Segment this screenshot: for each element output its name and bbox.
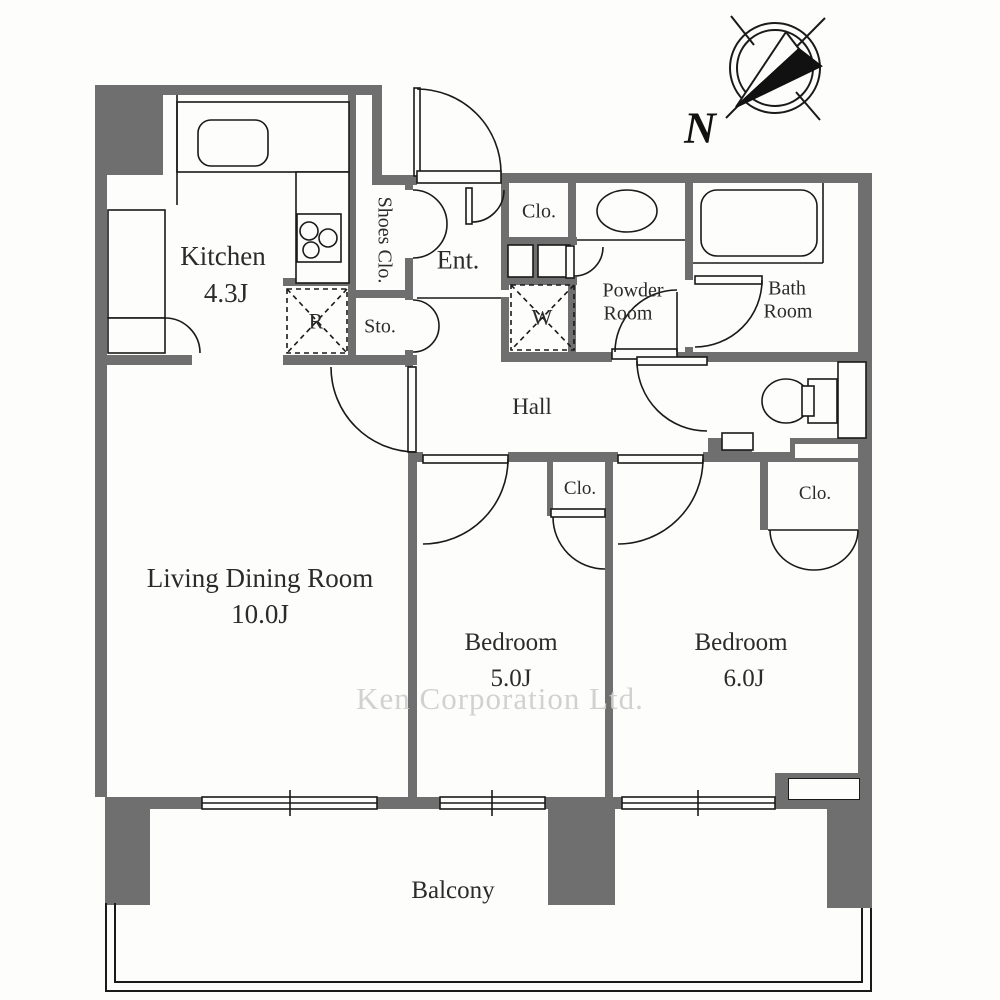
powder-inner-door [566,246,603,278]
room-label-closet-entrance: Clo. [522,202,556,223]
window [440,790,545,816]
room-size-bedroom6: 6.0J [724,666,765,692]
storage-doors [413,300,439,352]
window [202,790,377,816]
entrance-door [414,88,501,183]
compass-icon [726,16,825,120]
room-label-storage: Sto. [364,317,396,338]
watermark: Ken Corporation Ltd. [356,681,644,717]
bathtub [693,183,823,263]
entrance-closet-door [466,188,504,224]
bath-door [695,276,762,347]
living-room-door [331,367,416,452]
room-label-bedroom6: Bedroom [694,630,787,656]
room-label-hall: Hall [512,395,552,419]
room-label-balcony: Balcony [411,878,494,904]
room-label-kitchen: Kitchen [180,242,265,270]
toilet-door [637,357,707,431]
floor-plan: Kitchen 4.3J Shoes Clo. Sto. R W Ent. Cl… [0,0,1000,1000]
room-size-kitchen: 4.3J [204,279,248,307]
cabinet [508,245,533,277]
room-size-living: 10.0J [231,600,289,628]
room-label-closet-bedroom5: Clo. [564,479,596,499]
room-label-closet-bedroom6: Clo. [799,484,831,504]
symbol-washer: W [532,305,553,328]
compass-north-label: N [684,103,716,154]
vanity-sink [577,190,685,240]
bedroom6-closet-bifold-door [768,530,858,570]
room-label-entrance: Ent. [437,246,480,273]
window [622,790,775,816]
room-label-bath-room-line2: Room [764,302,813,323]
room-label-powder-room-line2: Room [604,304,653,325]
toilet [722,362,866,450]
bedroom5-closet-door [551,509,605,569]
fixtures-layer [0,0,1000,1000]
room-label-powder-room-line1: Powder [602,281,663,302]
balcony-railing [106,903,871,991]
room-label-bath-room-line1: Bath [768,279,806,300]
room-label-bedroom5: Bedroom [464,630,557,656]
bedroom5-door [423,455,508,544]
symbol-refrigerator: R [309,309,324,332]
room-label-living: Living Dining Room [147,564,374,592]
room-label-shoes-closet: Shoes Clo. [374,197,395,284]
bedroom6-door [618,455,703,544]
kitchen-cabinet [108,210,200,353]
